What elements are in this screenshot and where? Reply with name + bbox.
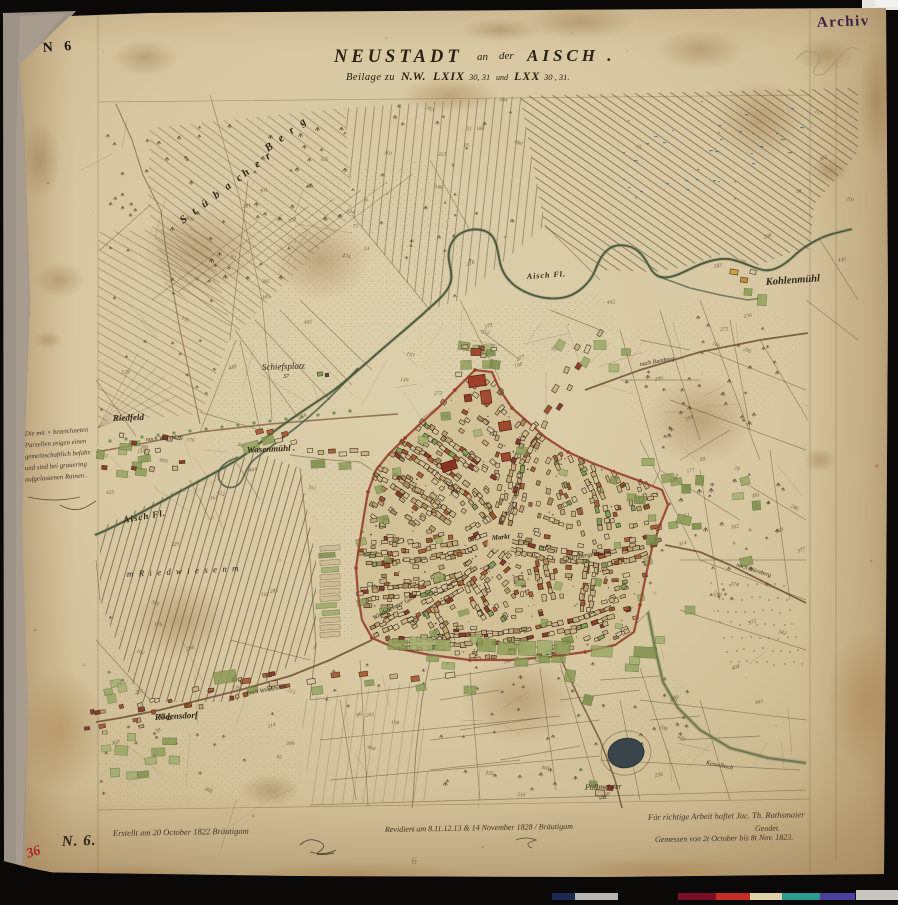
svg-text:129: 129 [121, 369, 130, 376]
svg-text:37: 37 [282, 374, 290, 380]
svg-text:149: 149 [400, 376, 409, 384]
svg-text:396: 396 [285, 741, 295, 747]
svg-text:Geodet.: Geodet. [755, 824, 780, 833]
svg-text:285: 285 [270, 588, 279, 595]
svg-text:407: 407 [755, 698, 764, 706]
svg-text:405: 405 [304, 318, 313, 326]
svg-text:30 , 31.: 30 , 31. [543, 72, 570, 82]
svg-text:N. 6.: N. 6. [61, 833, 97, 850]
svg-text:LXX: LXX [513, 69, 540, 83]
svg-text:N 6: N 6 [42, 39, 76, 56]
svg-text:310: 310 [516, 792, 526, 799]
svg-text:176: 176 [154, 622, 163, 628]
svg-text:NEUSTADT: NEUSTADT [333, 47, 463, 67]
svg-text:101: 101 [261, 592, 270, 598]
svg-text:Archiv: Archiv [817, 13, 870, 31]
svg-text:an: an [477, 51, 489, 63]
svg-text:304: 304 [540, 764, 550, 772]
svg-text:304: 304 [498, 96, 508, 104]
svg-text:442: 442 [607, 298, 616, 306]
svg-text:351: 351 [307, 485, 317, 492]
svg-text:215: 215 [135, 689, 144, 696]
svg-text:329: 329 [170, 541, 180, 548]
svg-text:Beilage zu: Beilage zu [346, 72, 395, 83]
svg-text:und: und [496, 73, 509, 82]
svg-text:272: 272 [720, 327, 729, 333]
svg-text:58: 58 [796, 189, 802, 195]
svg-text:198: 198 [391, 720, 400, 726]
svg-text:430: 430 [837, 256, 846, 264]
svg-text:der: der [499, 50, 514, 62]
svg-text:348: 348 [433, 183, 443, 191]
svg-text:272: 272 [434, 391, 443, 397]
svg-text:381: 381 [261, 279, 271, 285]
svg-text:AISCH .: AISCH . [526, 46, 615, 65]
svg-text:176: 176 [186, 437, 195, 444]
svg-text:425: 425 [106, 489, 115, 496]
svg-text:186: 186 [476, 126, 485, 132]
svg-text:LXIX: LXIX [432, 69, 465, 83]
svg-text:95: 95 [464, 143, 470, 149]
svg-text:353: 353 [437, 152, 447, 158]
svg-text:78: 78 [734, 466, 740, 473]
svg-text:30, 31: 30, 31 [468, 72, 490, 82]
svg-text:69: 69 [700, 457, 706, 463]
svg-text:N.W.: N.W. [400, 69, 425, 83]
svg-text:Schiefsplatz: Schiefsplatz [262, 360, 306, 372]
svg-text:71: 71 [352, 223, 359, 230]
svg-text:Riedfeld: Riedfeld [112, 412, 145, 423]
svg-text:165: 165 [262, 294, 271, 301]
svg-text:464: 464 [248, 466, 258, 474]
svg-text:203: 203 [366, 712, 375, 719]
svg-text:Füllmeister: Füllmeister [584, 782, 623, 792]
svg-text:6: 6 [411, 856, 417, 867]
svg-text:28.: 28. [600, 795, 608, 801]
